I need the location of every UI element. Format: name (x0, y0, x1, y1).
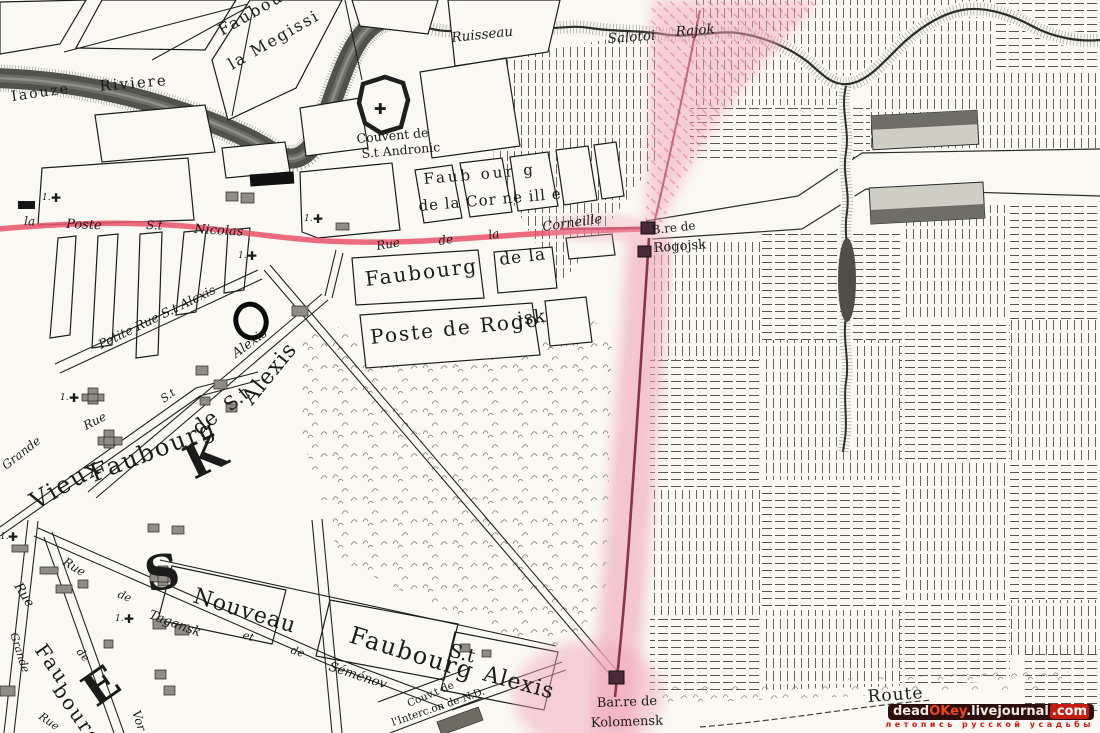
label-poste-nicolas-1: la (24, 214, 35, 228)
church-cross-icon: ✚ (69, 391, 79, 405)
watermark-com: .com (1050, 704, 1089, 719)
watermark-okey: OKey (929, 704, 966, 719)
blocks-strips (50, 228, 250, 358)
label-rue-corneille-1: Rue (374, 235, 401, 253)
barrier-kolomensk-post (609, 671, 624, 684)
label-rue-bottom: Rue (35, 709, 62, 733)
label-salotoi: Salotoi (607, 28, 656, 47)
label-tagansk-de: de (116, 588, 134, 605)
label-poste-nicolas-3: S.t (146, 218, 163, 233)
watermark-dead: dead (893, 704, 929, 719)
label-rue-steep: Rue (10, 579, 37, 610)
cross-number: 1. (304, 214, 313, 224)
label-grande-rue-1: Grande (0, 434, 43, 473)
church-cross-icon: ✚ (124, 612, 134, 626)
label-rue-alexis: Alexis (229, 326, 271, 362)
label-rue-corneille-2: de (437, 232, 454, 248)
church-cross-icon: ✚ (51, 191, 61, 205)
label-grande-rue-2: Rue (80, 409, 109, 433)
label-river-riviere: Riviere (99, 71, 169, 95)
label-tagansk-et: et (241, 628, 256, 644)
label-barriere-kolomensk-1: Bar.re de (597, 694, 658, 711)
watermark-tagline: летопись русской усадьбы (885, 721, 1094, 730)
roadside-building (18, 201, 35, 209)
couvent-st-andronic: ✚ (359, 77, 408, 133)
cross-number: 1. (60, 393, 69, 403)
label-rajok: Rajok (674, 21, 715, 40)
church-cross-icon: ✚ (247, 249, 257, 263)
label-vor: Vor (129, 709, 149, 733)
label-barriere-kolomensk-2: Kolomensk (591, 713, 664, 731)
pond (838, 238, 856, 322)
label-de-bottom: de (74, 646, 93, 665)
barrier-rogojsk-post2 (638, 246, 651, 257)
watermark: deadOKey.livejournal.com летопись русско… (885, 701, 1094, 730)
cross-number: 1. (238, 251, 247, 261)
label-faubourg-rogojsk-4: jsk (514, 306, 547, 331)
convent-cross-icon: ✚ (374, 100, 387, 118)
church-cross-icon: ✚ (313, 212, 323, 226)
engraved-city-map: ✚ K S E 1. ✚ 1. ✚ 1. ✚ 1. ✚ 1. ✚ 1. ✚ (0, 0, 1100, 733)
church-cross-icon: ✚ (8, 530, 18, 544)
district-letter-s: S (140, 543, 184, 604)
label-poste-nicolas-4: Nicolas (193, 222, 244, 240)
watermark-bar: deadOKey.livejournal.com (888, 704, 1094, 720)
label-poste-nicolas-2: Poste (65, 217, 102, 233)
label-rue-corneille-3: la (487, 226, 500, 242)
map-canvas: ✚ K S E 1. ✚ 1. ✚ 1. ✚ 1. ✚ 1. ✚ 1. ✚ (0, 0, 1100, 733)
cross-number: 1. (115, 614, 124, 624)
watermark-livejournal: .livejournal (966, 704, 1049, 719)
label-semenov-de: de (289, 643, 306, 660)
cross-number: 1. (42, 193, 51, 203)
